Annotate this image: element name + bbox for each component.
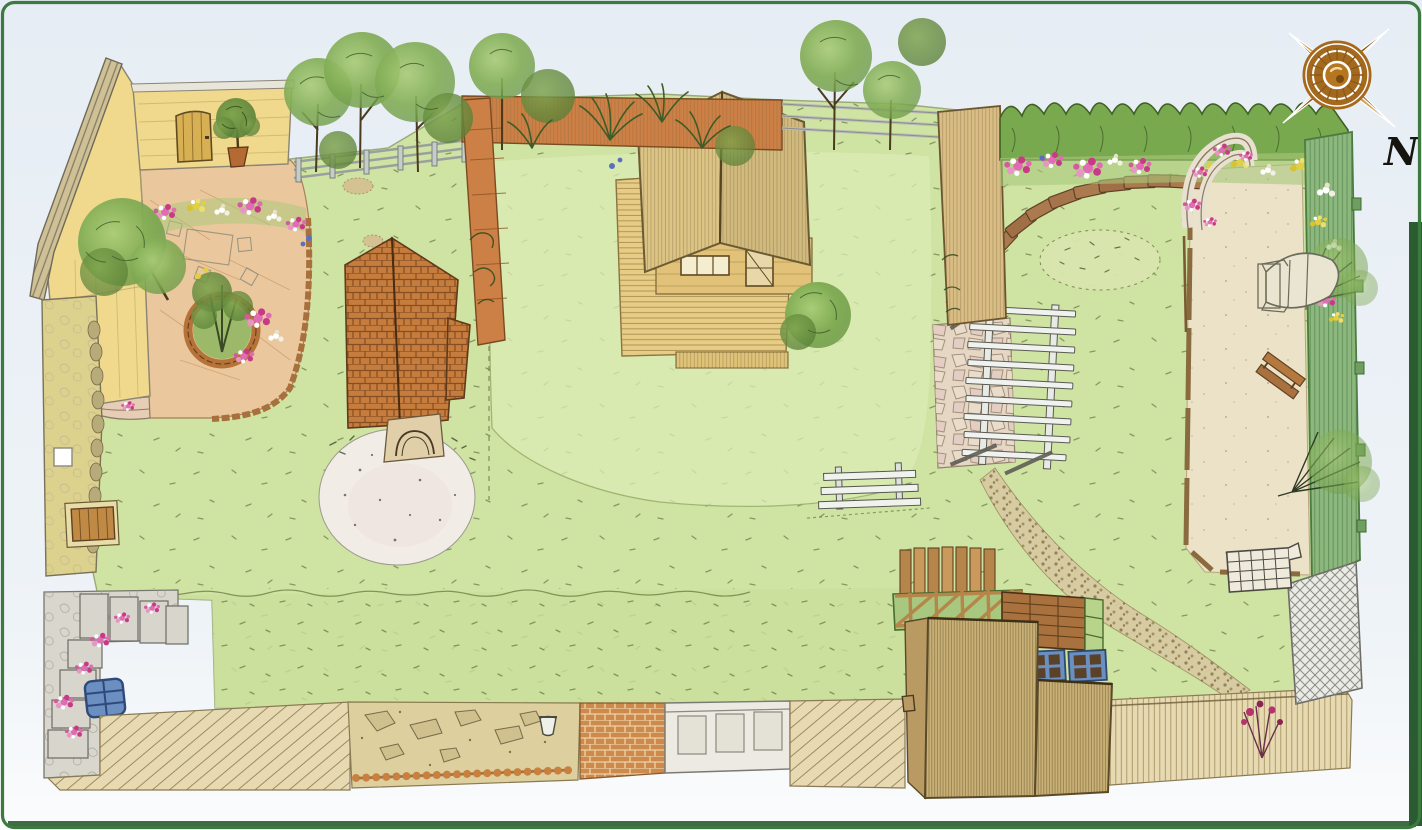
grey-trellis [1288,562,1362,704]
north-label: N [1383,129,1420,174]
cabin-windows [681,256,729,275]
flower-bed [1000,152,1348,186]
middle-decking [790,699,905,788]
raised-bed-side [1085,598,1103,658]
rockery-bed [348,702,580,788]
pergola-beams [962,306,1077,461]
wall-window [54,448,72,466]
white-gate [665,701,790,773]
wildflower-oval [1040,230,1160,290]
house-door [176,111,212,162]
pavilion-arch-front [384,414,444,462]
picket-screen [900,547,995,596]
wall-door [65,501,119,548]
cold-frame-blue [84,678,126,718]
garden-plan-page: N [0,0,1422,830]
garden-plan-canvas: N [0,0,1422,830]
brick-path [580,703,665,779]
meadow-strip [100,588,910,708]
tall-timber-screen [938,106,1006,325]
flagstone-patio [933,318,1015,468]
